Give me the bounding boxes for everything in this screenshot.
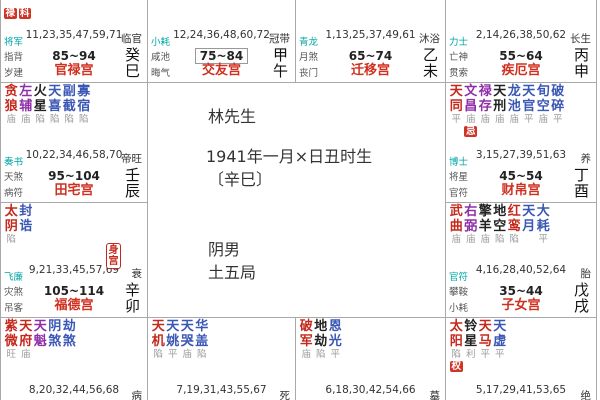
star-status: 陷 [509,234,519,245]
star-column: 擎羊庙 [478,205,493,245]
star-status: 庙 [21,349,31,360]
star-char: 副 [63,85,76,100]
star-column: 龙池庙 [507,85,522,137]
age-sequence: 8,20,32,44,56,68 [21,384,127,396]
star-char: 天 [34,320,47,335]
star-char: 弼 [464,220,477,235]
star-status: 陷 [495,234,505,245]
star-list: 太阳陷权铃星利天马平天虚平 [449,320,507,372]
star-char: 华 [195,320,208,335]
star-char: 府 [19,335,32,350]
age-sequence: 4,16,28,40,52,64 [466,264,576,276]
star-column: 紫微旺 [4,320,19,360]
star-column: 恩光平 [328,320,343,360]
palace-hai: 太阳陷权铃星利天马平天虚平5,17,29,41,53,65绝 [445,317,597,400]
star-char: 哭 [181,335,194,350]
star-column: 天魁 [33,320,48,360]
star-char: 旬 [537,85,550,100]
star-char: 喜 [48,100,61,115]
star-char: 天 [479,320,492,335]
star-char: 军 [300,335,313,350]
star-char: 姚 [166,335,179,350]
age-sequence: 1,13,25,37,49,61 [316,29,425,41]
earthly-branch: 申 [574,60,589,81]
life-stage: 墓 [430,388,441,400]
star-column: 天刑庙 [493,85,508,137]
earthly-branch: 未 [423,60,438,81]
star-char: 天 [522,85,535,100]
star-status: 平 [480,349,490,360]
star-char: 星 [464,335,477,350]
star-column: 大耗平 [536,205,551,245]
earthly-branch: 巳 [125,60,140,81]
star-column: 阴煞 [48,320,63,360]
palace-shen: 力士亡神贯索2,14,26,38,50,6255~64疾厄宫长生丙申 [445,0,597,83]
star-char: 虚 [493,335,506,350]
gender-label: 阴男 [208,236,240,260]
star-char: 太 [5,205,18,220]
star-char: 昌 [464,100,477,115]
star-status: 陷 [153,349,163,360]
star-char: 左 [19,85,32,100]
star-char: 狼 [5,100,18,115]
star-list: 贪狼庙左辅庙火星陷天喜陷副截陷寡宿陷 [4,85,91,125]
palace-chou: 天机陷天姚平天哭庙华盖陷7,19,31,43,55,67死 [147,317,296,400]
star-char: 天 [19,320,32,335]
star-status: 庙 [466,234,476,245]
star-column: 寡宿陷 [77,85,92,125]
age-sequence: 7,19,31,43,55,67 [168,384,275,396]
star-char: 月 [522,220,535,235]
life-stage: 绝 [581,388,592,400]
life-stage: 死 [280,388,291,400]
earthly-branch: 酉 [574,180,589,201]
star-char: 羊 [479,220,492,235]
star-char: 盖 [195,335,208,350]
earthly-branch: 戌 [574,295,589,316]
body-palace-badge: 身宫 [106,243,121,269]
star-char: 武 [450,205,463,220]
star-column: 天同平 [449,85,464,137]
star-status: 庙 [495,114,505,125]
palace-yin: 紫微旺天府庙天魁阴煞劫煞8,20,32,44,56,68病 [0,317,148,400]
person-name: 林先生 [208,103,256,127]
star-column: 旬空庙 [536,85,551,137]
star-status: 平 [330,349,340,360]
star-status: 陷 [35,114,45,125]
star-column: 天喜陷 [48,85,63,125]
star-char: 地 [493,205,506,220]
star-char: 诰 [19,220,32,235]
star-char: 封 [19,205,32,220]
star-status: 陷 [451,349,461,360]
palace-wei: 青龙月煞丧门1,13,25,37,49,6165~74迁移宫沐浴乙未 [295,0,446,83]
star-char: 微 [5,335,18,350]
star-column: 破碎平 [551,85,566,137]
star-char: 天 [493,85,506,100]
wuju-label: 土五局 [208,259,256,283]
earthly-branch: 辰 [125,180,140,201]
transform-badge: 权 [450,361,463,372]
star-char: 破 [300,320,313,335]
age-sequence: 5,17,29,41,53,65 [466,384,576,396]
star-status: 庙 [480,114,490,125]
star-status: 平 [495,349,505,360]
star-char: 官 [522,100,535,115]
center-panel: 林先生 1941年一月×日丑时生 〔辛巳〕 阴男 土五局 [148,83,445,317]
star-column: 武曲庙 [449,205,464,245]
star-char: 天 [522,205,535,220]
star-char: 煞 [63,335,76,350]
palace-you: 天同平文昌庙忌禄存庙天刑庙龙池庙天官平旬空庙破碎平博士将星官符3,15,27,3… [445,82,597,203]
star-status: 陷 [50,114,60,125]
star-column: 天月 [522,205,537,245]
star-status: 庙 [451,234,461,245]
star-char: 空 [537,100,550,115]
star-column: 太阳陷权 [449,320,464,372]
star-column: 铃星利 [464,320,479,372]
star-column: 天马平 [478,320,493,372]
star-char: 擎 [479,205,492,220]
star-column: 贪狼庙 [4,85,19,125]
star-char: 寡 [77,85,90,100]
star-column: 地空陷 [493,205,508,245]
star-char: 恩 [329,320,342,335]
birth-ganzhi: 〔辛巳〕 [208,166,272,190]
transform-badge: 禄 [4,8,17,19]
star-column: 火星陷 [33,85,48,125]
star-column: 文昌庙忌 [464,85,479,137]
star-list: 破军庙地劫陷恩光平 [299,320,343,360]
star-list: 天同平文昌庙忌禄存庙天刑庙龙池庙天官平旬空庙破碎平 [449,85,565,137]
star-status: 庙 [21,114,31,125]
star-status: 利 [466,349,476,360]
star-char: 池 [508,100,521,115]
star-char: 魁 [34,335,47,350]
ziwei-chart: 林先生 1941年一月×日丑时生 〔辛巳〕 阴男 土五局 禄科将军指背岁建11,… [0,0,600,400]
life-stage: 病 [132,388,143,400]
star-char: 机 [152,335,165,350]
star-column: 破军庙 [299,320,314,360]
palace-chen: 贪狼庙左辅庙火星陷天喜陷副截陷寡宿陷奏书天煞病符10,22,34,46,58,7… [0,82,148,203]
star-char: 天 [152,320,165,335]
star-char: 光 [329,335,342,350]
star-status: 平 [451,114,461,125]
star-column: 华盖陷 [195,320,210,360]
star-char: 刑 [493,100,506,115]
palace-xu: 武曲庙右弼庙擎羊庙地空陷红鸾陷天月大耗平官符攀鞍小耗4,16,28,40,52,… [445,202,597,318]
star-column: 封诰 [19,205,34,245]
star-status: 旺 [6,349,16,360]
star-status: 庙 [509,114,519,125]
palace-si: 禄科将军指背岁建11,23,35,47,59,7185~94官禄宫临官癸巳 [0,0,148,83]
star-column: 天官平 [522,85,537,137]
earthly-branch: 卯 [125,295,140,316]
star-list: 太阴陷封诰 [4,205,33,245]
star-char: 鸾 [508,220,521,235]
star-char: 耗 [537,220,550,235]
star-status: 庙 [466,114,476,125]
star-char: 紫 [5,320,18,335]
star-column: 左辅庙 [19,85,34,125]
transform-badges: 禄科 [4,7,31,19]
star-char: 天 [48,85,61,100]
star-status: 庙 [182,349,192,360]
star-char: 文 [464,85,477,100]
star-status: 平 [524,114,534,125]
earthly-branch: 午 [273,60,288,81]
star-char: 破 [551,85,564,100]
star-char: 劫 [314,335,327,350]
star-char: 贪 [5,85,18,100]
star-status: 庙 [538,114,548,125]
age-sequence: 10,22,34,46,58,70 [21,149,127,161]
star-char: 阴 [48,320,61,335]
star-char: 龙 [508,85,521,100]
star-column: 右弼庙 [464,205,479,245]
star-status: 陷 [64,114,74,125]
transform-badge: 忌 [464,126,477,137]
star-char: 天 [181,320,194,335]
star-column: 天机陷 [151,320,166,360]
star-list: 天机陷天姚平天哭庙华盖陷 [151,320,209,360]
star-char: 存 [479,100,492,115]
star-char: 阳 [450,335,463,350]
star-char: 辅 [19,100,32,115]
star-status: 陷 [6,234,16,245]
transform-badge: 科 [19,8,32,19]
age-sequence: 2,14,26,38,50,62 [466,29,576,41]
star-char: 碎 [551,100,564,115]
star-status: 平 [538,234,548,245]
star-char: 煞 [48,335,61,350]
star-status: 陷 [316,349,326,360]
star-status: 平 [553,114,563,125]
star-char: 右 [464,205,477,220]
palace-mao: 太阴陷封诰飞廉灾煞吊客9,21,33,45,57,69105~114福德宫衰辛卯… [0,202,148,318]
star-column: 副截陷 [62,85,77,125]
star-char: 铃 [464,320,477,335]
age-sequence: 6,18,30,42,54,66 [316,384,425,396]
star-column: 天府庙 [19,320,34,360]
palace-wu: 小耗咸池晦气12,24,36,48,60,7275~84交友宫冠带甲午 [147,0,296,83]
star-char: 天 [450,85,463,100]
star-status: 庙 [480,234,490,245]
birth-date-line: 1941年一月×日丑时生 [206,143,372,167]
star-column: 红鸾陷 [507,205,522,245]
star-status: 平 [168,349,178,360]
star-list: 武曲庙右弼庙擎羊庙地空陷红鸾陷天月大耗平 [449,205,551,245]
star-char: 宿 [77,100,90,115]
star-char: 阴 [5,220,18,235]
star-char: 禄 [479,85,492,100]
star-column: 禄存庙 [478,85,493,137]
star-char: 地 [314,320,327,335]
star-char: 曲 [450,220,463,235]
star-column: 天姚平 [166,320,181,360]
star-char: 火 [34,85,47,100]
star-status: 陷 [79,114,89,125]
star-char: 同 [450,100,463,115]
star-char: 劫 [63,320,76,335]
star-column: 天虚平 [493,320,508,372]
age-sequence: 11,23,35,47,59,71 [21,29,127,41]
star-status: 庙 [301,349,311,360]
star-char: 截 [63,100,76,115]
star-list: 紫微旺天府庙天魁阴煞劫煞 [4,320,77,360]
star-column: 劫煞 [62,320,77,360]
age-sequence: 12,24,36,48,60,72 [168,29,275,41]
star-column: 地劫陷 [314,320,329,360]
star-char: 红 [508,205,521,220]
palace-zi: 破军庙地劫陷恩光平6,18,30,42,54,66墓 [295,317,446,400]
star-char: 星 [34,100,47,115]
age-sequence: 3,15,27,39,51,63 [466,149,576,161]
star-status: 陷 [197,349,207,360]
star-column: 太阴陷 [4,205,19,245]
star-char: 大 [537,205,550,220]
star-column: 天哭庙 [180,320,195,360]
star-char: 天 [493,320,506,335]
star-char: 马 [479,335,492,350]
star-char: 天 [166,320,179,335]
star-status: 庙 [6,114,16,125]
star-char: 太 [450,320,463,335]
star-char: 空 [493,220,506,235]
